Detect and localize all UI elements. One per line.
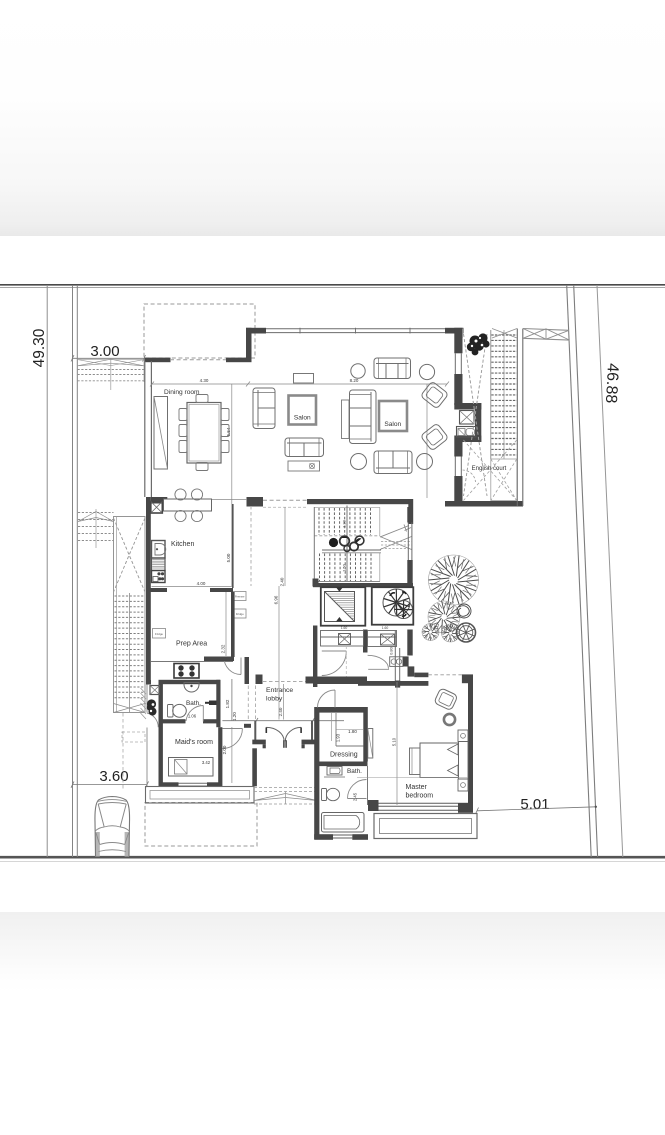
svg-text:5.54: 5.54 [226,427,231,436]
svg-text:Maid's room: Maid's room [175,739,213,746]
svg-text:Salon: Salon [294,415,311,422]
svg-text:Prep Area: Prep Area [176,641,207,648]
svg-text:Kitchen: Kitchen [171,541,194,548]
svg-text:5.00: 5.00 [226,553,231,562]
svg-text:1.06: 1.06 [188,714,197,719]
svg-text:3.60: 3.60 [99,768,128,785]
svg-text:Freezer: Freezer [235,595,245,599]
svg-text:bedroom: bedroom [406,793,434,800]
svg-text:8.20: 8.20 [350,378,359,383]
svg-text:1.20: 1.20 [232,712,237,721]
svg-text:1.82: 1.82 [225,699,230,708]
svg-text:3.42: 3.42 [202,760,211,765]
svg-text:Dining room: Dining room [164,389,200,396]
svg-text:Entrance: Entrance [266,687,293,694]
svg-text:1.50: 1.50 [342,563,347,572]
svg-text:6.96: 6.96 [274,595,279,604]
svg-text:Fridge: Fridge [155,632,163,636]
svg-text:0.80: 0.80 [389,646,394,655]
svg-text:49.30: 49.30 [31,328,48,367]
svg-text:5.01: 5.01 [520,796,549,813]
svg-text:Fridge: Fridge [236,612,244,616]
svg-text:1.60: 1.60 [382,626,389,630]
svg-text:5.10: 5.10 [392,737,397,746]
svg-text:2.32: 2.32 [221,644,226,653]
svg-text:2.40: 2.40 [280,577,285,586]
svg-text:English court: English court [472,466,507,472]
svg-text:4.30: 4.30 [200,378,209,383]
svg-text:Master: Master [406,784,428,791]
svg-text:1.93: 1.93 [336,733,341,742]
svg-text:4.00: 4.00 [197,581,206,586]
svg-text:2.45: 2.45 [353,792,358,801]
svg-text:46.88: 46.88 [602,363,621,404]
svg-text:Dressing: Dressing [330,752,358,759]
svg-text:Salon: Salon [384,421,401,428]
svg-text:1.30: 1.30 [342,519,347,528]
svg-text:1.60: 1.60 [341,626,348,630]
svg-text:3.00: 3.00 [90,343,119,360]
svg-text:2.00: 2.00 [222,745,227,754]
svg-text:lobby: lobby [266,696,283,703]
svg-text:Bath.: Bath. [347,768,362,775]
